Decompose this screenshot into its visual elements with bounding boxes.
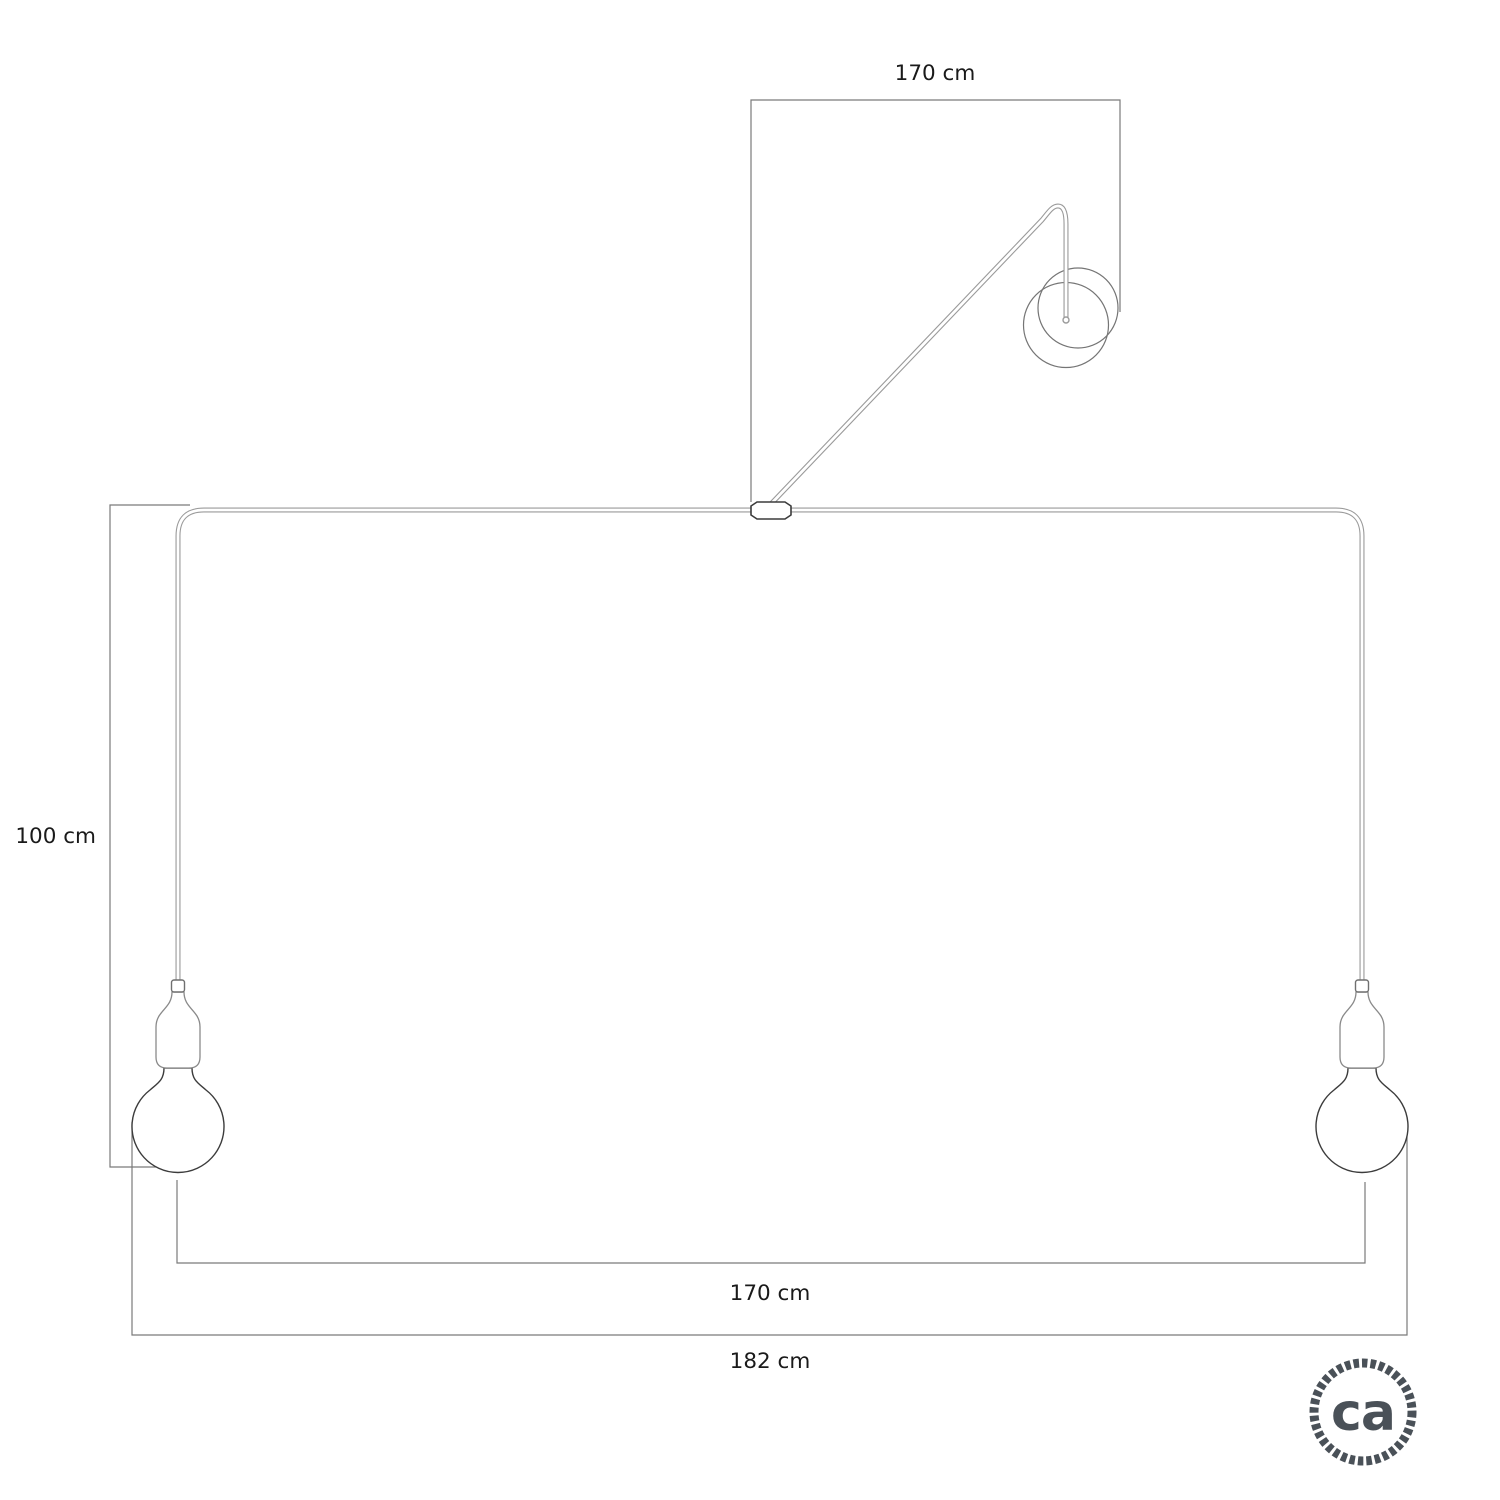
cables [178,206,1362,984]
wall-cup [1024,268,1119,368]
height-dimension-label: 100 cm [15,824,96,849]
brand-logo-text: ca [1331,1383,1395,1443]
wall-cup-back-circle [1038,268,1118,348]
wall-cable [769,206,1069,506]
left-pendant [132,980,224,1172]
dimension-lines [110,100,1407,1335]
main-cable [178,510,1362,984]
top-cable-dimension-label: 170 cm [895,61,976,86]
lamp-dimension-diagram: 170 cm 100 cm 170 cm 182 cm ca [0,0,1500,1500]
left-socket-cap [172,980,185,992]
right-socket [1340,992,1384,1068]
left-bulb [132,1068,224,1172]
left-socket [156,992,200,1068]
right-bulb [1316,1068,1408,1172]
brand-logo: ca [1314,1363,1412,1461]
center-connector [751,502,791,519]
spread-dimension-label: 170 cm [730,1281,811,1306]
right-pendant [1316,980,1408,1172]
spread-dimension-bracket [177,1180,1365,1263]
cable-end-tip [1063,317,1069,323]
total-width-dimension-label: 182 cm [730,1349,811,1374]
right-socket-cap [1356,980,1369,992]
